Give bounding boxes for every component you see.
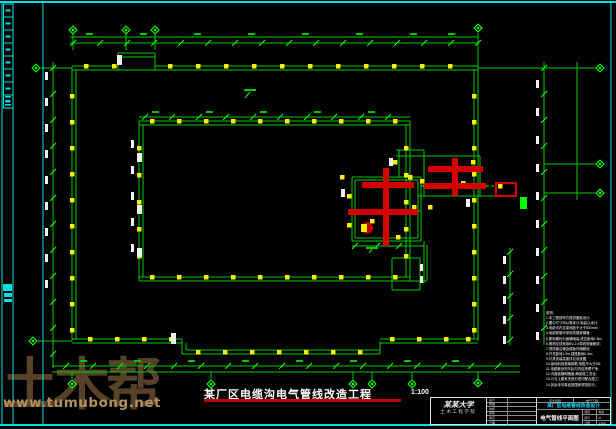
- school-name: 某某大学: [431, 401, 486, 409]
- watermark-url: www.tumubong.net: [3, 395, 161, 411]
- meta-row: 比例1:100: [583, 421, 610, 425]
- drawing-scale: 1:100: [411, 389, 429, 396]
- title-block-right: 专业班级 电气工程 某厂区电缆管线改造设计 电气管线平面图 图别电施 图号01 …: [537, 398, 610, 424]
- table-row: 日期: [487, 421, 536, 425]
- drawing-meta-grid: 图别电施 图号01 比例1:100: [583, 410, 610, 425]
- notes-block: 说明:1.本工程按甲方提供图纸设计;2.图中尺寸均以毫米计,标高以米计;3.电缆…: [546, 311, 610, 388]
- cad-floor-plan-drawing: [0, 0, 616, 429]
- project-name: 某厂区电缆管线改造设计: [537, 403, 610, 410]
- title-block: 某某大学 土木工程学院 设计 制图 校核 审核 审定 日期 专业班级 电气工程 …: [430, 397, 611, 425]
- block-drawing-title: 电气管线平面图: [537, 410, 583, 425]
- drawing-title-underline: [204, 399, 401, 402]
- school-department: 土木工程学院: [431, 409, 486, 415]
- cad-sheet: 土木帮 说明:1.本工程按甲方提供图纸设计;2.图中尺寸均以毫米计,标高以米计;…: [0, 0, 616, 429]
- signature-table: 设计 制图 校核 审核 审定 日期: [487, 398, 537, 424]
- title-block-main: 电气管线平面图 图别电施 图号01 比例1:100: [537, 410, 610, 425]
- title-block-logo: 某某大学 土木工程学院: [431, 398, 487, 424]
